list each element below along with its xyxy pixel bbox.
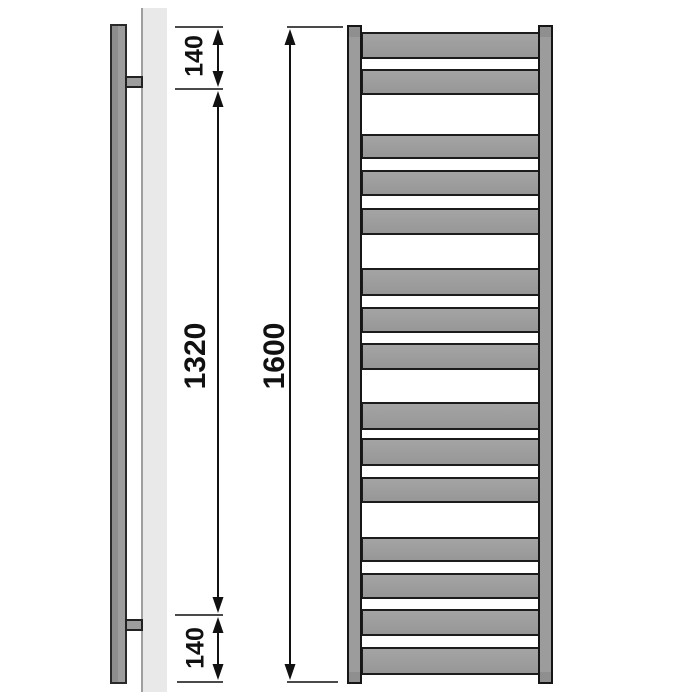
arrowhead-up-icon (213, 617, 224, 633)
radiator-dimension-drawing: 140 1320 1600 140 (0, 0, 700, 700)
arrowhead-up-icon (285, 29, 296, 45)
mounting-bracket-bottom (125, 619, 143, 631)
arrowhead-down-icon (213, 597, 224, 613)
crossbar (361, 402, 540, 430)
dimension-label-bottom-offset: 140 (182, 627, 211, 669)
arrowhead-up-icon (213, 91, 224, 107)
mounting-bracket-top (125, 76, 143, 88)
crossbar (361, 208, 540, 235)
side-view-radiator-profile (110, 24, 127, 684)
crossbar (361, 438, 540, 466)
wall-strip (141, 8, 167, 692)
crossbar (361, 268, 540, 296)
front-view-right-rail (538, 25, 553, 684)
crossbar (361, 134, 540, 159)
arrowhead-up-icon (213, 29, 224, 45)
crossbar (361, 170, 540, 196)
arrowhead-down-icon (213, 664, 224, 680)
crossbar (361, 647, 540, 675)
crossbar (361, 537, 540, 562)
crossbar (361, 32, 540, 59)
crossbar (361, 477, 540, 503)
arrowhead-down-icon (213, 71, 224, 87)
dimension-label-overall-height: 1600 (258, 323, 292, 390)
crossbar (361, 69, 540, 95)
front-view-left-rail (347, 25, 362, 684)
arrowhead-down-icon (285, 664, 296, 680)
crossbar (361, 573, 540, 599)
crossbar (361, 307, 540, 333)
dimension-label-top-offset: 140 (181, 35, 210, 77)
dimension-label-middle-span: 1320 (179, 323, 213, 390)
crossbar (361, 343, 540, 370)
crossbar (361, 609, 540, 636)
